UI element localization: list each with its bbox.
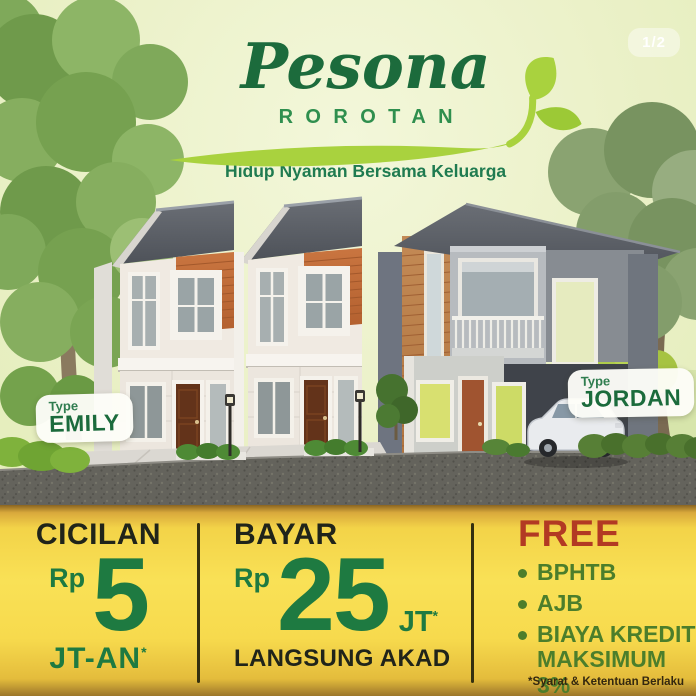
bullet-icon	[518, 600, 527, 609]
brand-block: Pesona ROROTAN Hidup Nyaman Bersama Kelu…	[146, 34, 586, 182]
free-title: FREE	[518, 513, 696, 555]
free-item-text: AJB	[537, 591, 583, 617]
property-ad-poster: 1/2 Pesona ROROTAN Hidup Nyaman Bersama …	[0, 0, 696, 696]
brand-subname: ROROTAN	[146, 106, 586, 129]
pagination-badge[interactable]: 1/2	[628, 28, 680, 57]
type-name-emily: EMILY	[49, 411, 120, 436]
type-badge-emily: Type EMILY	[35, 393, 133, 443]
payment-asterisk: *	[433, 607, 438, 623]
house-jordan-lit-window	[556, 282, 594, 362]
free-item-ajb: AJB	[518, 591, 696, 617]
installment-asterisk: *	[141, 644, 147, 660]
type-name-jordan: JORDAN	[581, 386, 682, 411]
installment-amount: Rp 5	[0, 550, 197, 642]
bullet-icon	[518, 569, 527, 578]
installment-unit-text: JT-AN	[49, 642, 141, 675]
type-badge-jordan: Type JORDAN	[567, 368, 694, 418]
pagination-label: 1/2	[642, 34, 666, 51]
installment-value: 5	[92, 550, 148, 642]
payment-subtitle: LANGSUNG AKAD	[234, 645, 471, 673]
free-column: FREE BPHTB AJB BIAYA KREDIT MAKSIMUM 3% …	[474, 505, 696, 696]
installment-column: CICILAN Rp 5 JT-AN*	[0, 505, 197, 696]
hedge-row-right	[578, 433, 696, 459]
house-emily-pillar	[234, 252, 244, 464]
payment-unit: JT*	[399, 606, 438, 639]
terms-note: *Syarat & Ketentuan Berlaku	[528, 676, 684, 688]
pricing-section: CICILAN Rp 5 JT-AN* BAYAR Rp 25 JT* LANG…	[0, 505, 696, 696]
brand-name: Pesona	[146, 34, 586, 100]
payment-currency: Rp	[234, 563, 270, 594]
hero-section: 1/2 Pesona ROROTAN Hidup Nyaman Bersama …	[0, 0, 696, 505]
tagline: Hidup Nyaman Bersama Keluarga	[146, 161, 586, 182]
installment-unit: JT-AN*	[0, 642, 197, 676]
free-item-bphtb: BPHTB	[518, 560, 696, 586]
payment-value: 25	[277, 550, 389, 642]
installment-currency: Rp	[49, 563, 85, 594]
bullet-icon	[518, 631, 527, 640]
free-item-text: BPHTB	[537, 560, 616, 586]
payment-unit-text: JT	[399, 606, 433, 638]
payment-amount: Rp 25 JT*	[234, 550, 471, 642]
grass-front-left	[0, 437, 90, 473]
payment-column: BAYAR Rp 25 JT* LANGSUNG AKAD	[200, 505, 471, 696]
